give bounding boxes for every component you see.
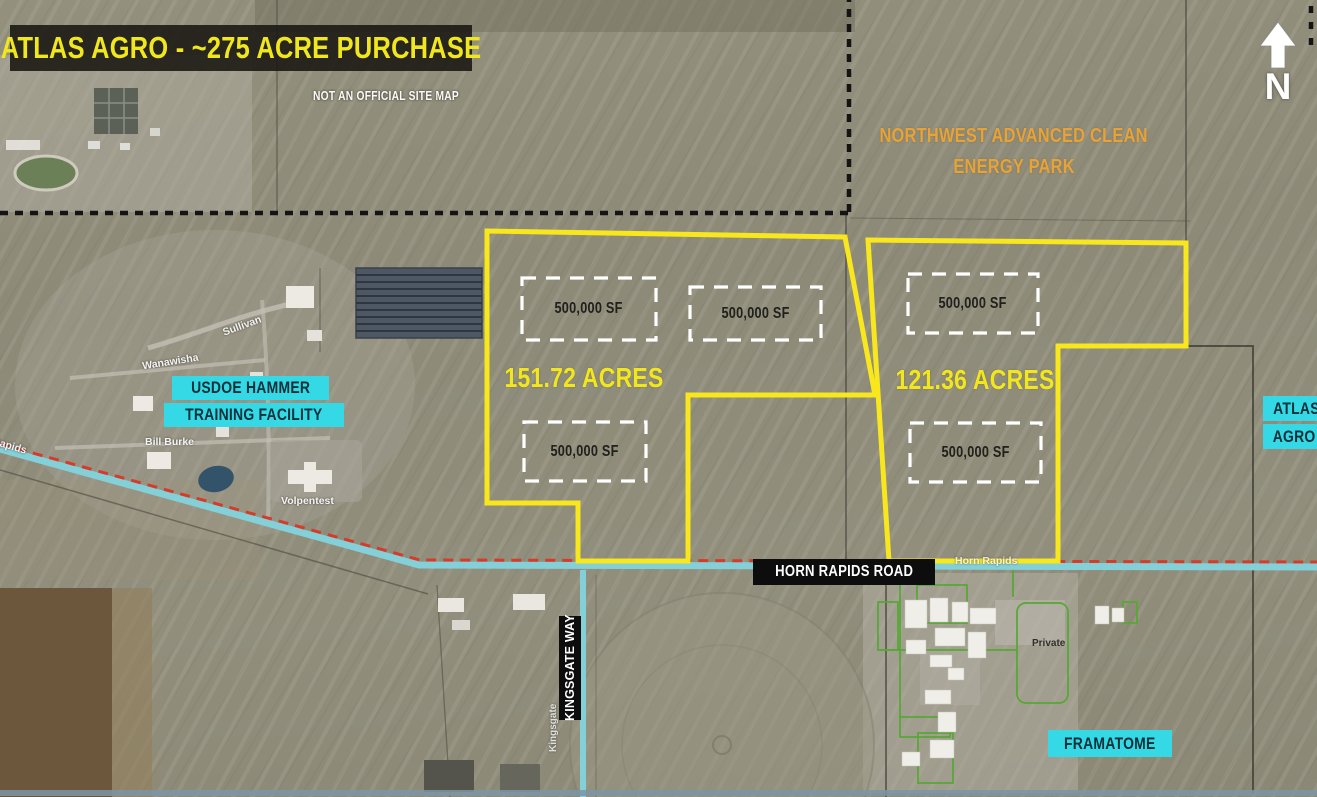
hammer-facility-label-line2: TRAINING FACILITY <box>164 403 344 427</box>
street-name-sullivan: Sullivan <box>221 313 263 338</box>
street-name-left-edge: Rapids <box>0 435 28 456</box>
east-pad-1-label: 500,000 SF <box>908 274 1038 333</box>
west-pad-2-label: 500,000 SF <box>690 287 821 340</box>
atlas-agro-label-line1: ATLAS <box>1263 396 1317 421</box>
street-name-volpentest: Volpentest <box>281 495 334 507</box>
atlas-agro-label-line2: AGRO <box>1263 424 1317 449</box>
map-disclaimer: NOT AN OFFICIAL SITE MAP <box>296 87 476 105</box>
north-label: N <box>1258 66 1298 108</box>
energy-park-label: NORTHWEST ADVANCED CLEAN ENERGY PARK <box>868 120 1160 184</box>
north-arrow-icon <box>1256 22 1300 70</box>
street-name-kingsgate: Kingsgate <box>548 690 559 752</box>
east-pad-2-label: 500,000 SF <box>910 423 1041 482</box>
street-name-bill-burke: Bill Burke <box>145 436 194 448</box>
street-name-wanawisha: Wanawisha <box>141 352 199 373</box>
west-parcel-acreage: 151.72 ACRES <box>514 360 654 396</box>
west-pad-3-label: 500,000 SF <box>524 422 646 481</box>
framatome-label: FRAMATOME <box>1048 730 1172 757</box>
street-name-horn-rapids: Horn Rapids <box>955 555 1017 567</box>
map-title: ATLAS AGRO - ~275 ACRE PURCHASE <box>10 25 472 71</box>
east-parcel-acreage: 121.36 ACRES <box>905 362 1045 398</box>
hammer-facility-label-line1: USDOE HAMMER <box>172 376 329 400</box>
kingsgate-way-label: KINGSGATE WAY <box>559 616 581 720</box>
aerial-site-map: N ATLAS AGRO - ~275 ACRE PURCHASE NOT AN… <box>0 0 1317 797</box>
horn-rapids-road-label: HORN RAPIDS ROAD <box>753 559 935 585</box>
street-name-private: Private <box>1032 638 1065 649</box>
west-pad-1-label: 500,000 SF <box>522 278 656 340</box>
